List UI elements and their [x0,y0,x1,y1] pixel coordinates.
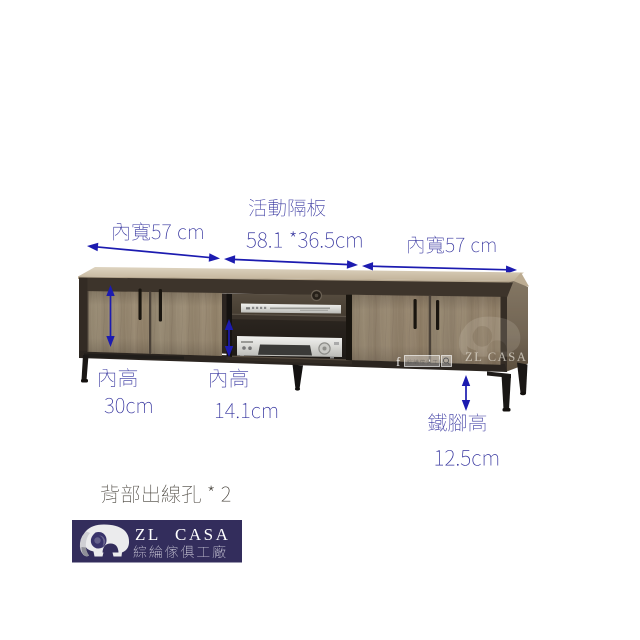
svg-text:ZL: ZL [135,525,161,544]
svg-text:ZL CASA: ZL CASA [465,350,527,364]
svg-text:CASA: CASA [175,525,230,544]
svg-text:f: f [396,354,401,369]
